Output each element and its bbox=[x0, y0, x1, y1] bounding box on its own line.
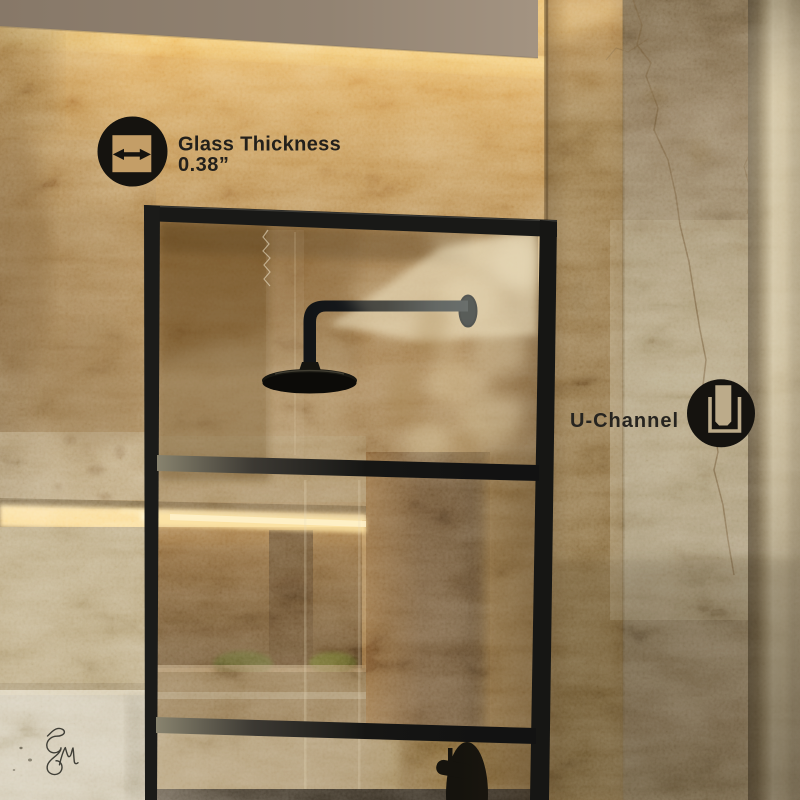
svg-text:Glass Thickness: Glass Thickness bbox=[178, 134, 341, 156]
svg-text:U-Channel: U-Channel bbox=[570, 410, 679, 432]
svg-text:0.38”: 0.38” bbox=[178, 154, 229, 176]
